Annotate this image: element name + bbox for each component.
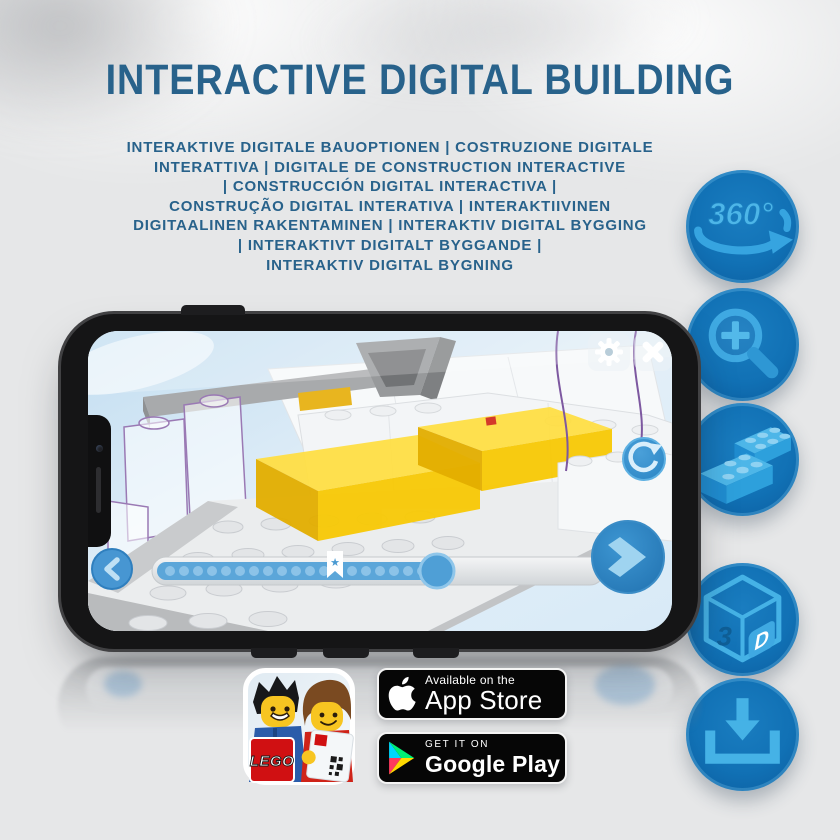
next-step-button[interactable] (592, 521, 664, 593)
lego-app-icon[interactable]: LEGO (243, 668, 355, 785)
3d-label-3: 3 (717, 621, 732, 652)
google-play-tagline: GET IT ON (425, 740, 560, 751)
app-store-badge[interactable]: Available on the App Store (377, 668, 567, 720)
reflection-dot (104, 671, 142, 697)
subtitle-line: CONSTRUÇÃO DIGITAL INTERATIVA | INTERAKT… (60, 197, 720, 217)
progress-slider[interactable]: ★ (152, 551, 604, 588)
app-store-label: App Store (425, 687, 542, 714)
phone-volume-button (323, 648, 369, 658)
star-icon: ★ (330, 557, 340, 569)
feature-3d-badge: 3 D (686, 563, 799, 676)
3d-label-d: D (754, 624, 769, 656)
feature-download-badge (686, 678, 799, 791)
close-button[interactable] (634, 333, 672, 371)
rotate-part-button[interactable] (623, 438, 665, 480)
building-app-screenshot: ★ (88, 331, 672, 631)
phone-power-button (181, 305, 245, 315)
phone-mockup: ★ (58, 311, 701, 652)
phone-volume-button (413, 648, 459, 658)
lego-3d-scene (88, 331, 672, 631)
phone-volume-button (251, 648, 297, 658)
apple-icon (379, 676, 425, 712)
previous-step-button[interactable] (92, 549, 132, 589)
subtitle-line: | CONSTRUCCIÓN DIGITAL INTERACTIVA | (60, 177, 720, 197)
subtitle-line: INTERAKTIVE DIGITALE BAUOPTIONEN | COSTR… (60, 138, 720, 158)
progress-handle[interactable] (420, 554, 454, 588)
subtitle-line: DIGITAALINEN RAKENTAMINEN | INTERAKTIV D… (60, 216, 720, 236)
360-label: 360° (708, 196, 773, 231)
google-play-badge[interactable]: GET IT ON Google Play (377, 732, 567, 784)
lego-logo-text: LEGO (250, 753, 295, 770)
feature-brick-badge (686, 403, 799, 516)
feature-360-badge: 360° (686, 170, 799, 283)
3d-view-icon: 3 D (686, 563, 799, 676)
feature-zoom-badge (686, 288, 799, 401)
phone-screen: ★ (88, 331, 672, 631)
poster: INTERACTIVE DIGITAL BUILDING INTERAKTIVE… (0, 0, 840, 840)
camera-icon (96, 445, 103, 452)
google-play-icon (379, 741, 425, 775)
subtitle-line: INTERAKTIV DIGITAL BYGNING (60, 256, 720, 276)
gear-icon (595, 338, 623, 366)
reflection-dot (595, 665, 655, 705)
zoom-in-icon (686, 288, 799, 401)
lego-brick-icon (686, 403, 799, 516)
subtitle-line: INTERATTIVA | DIGITALE DE CONSTRUCTION I… (60, 158, 720, 178)
subtitle-block: INTERAKTIVE DIGITALE BAUOPTIONEN | COSTR… (60, 138, 720, 275)
360-rotation-icon: 360° (686, 170, 799, 283)
speaker-slit (96, 467, 101, 513)
download-icon (686, 678, 799, 791)
google-play-label: Google Play (425, 752, 560, 776)
lego-logo: LEGO (250, 738, 295, 782)
page-title: INTERACTIVE DIGITAL BUILDING (50, 56, 789, 105)
subtitle-line: | INTERAKTIVT DIGITALT BYGGANDE | (60, 236, 720, 256)
phone-notch (88, 415, 111, 547)
settings-button[interactable] (588, 333, 630, 371)
